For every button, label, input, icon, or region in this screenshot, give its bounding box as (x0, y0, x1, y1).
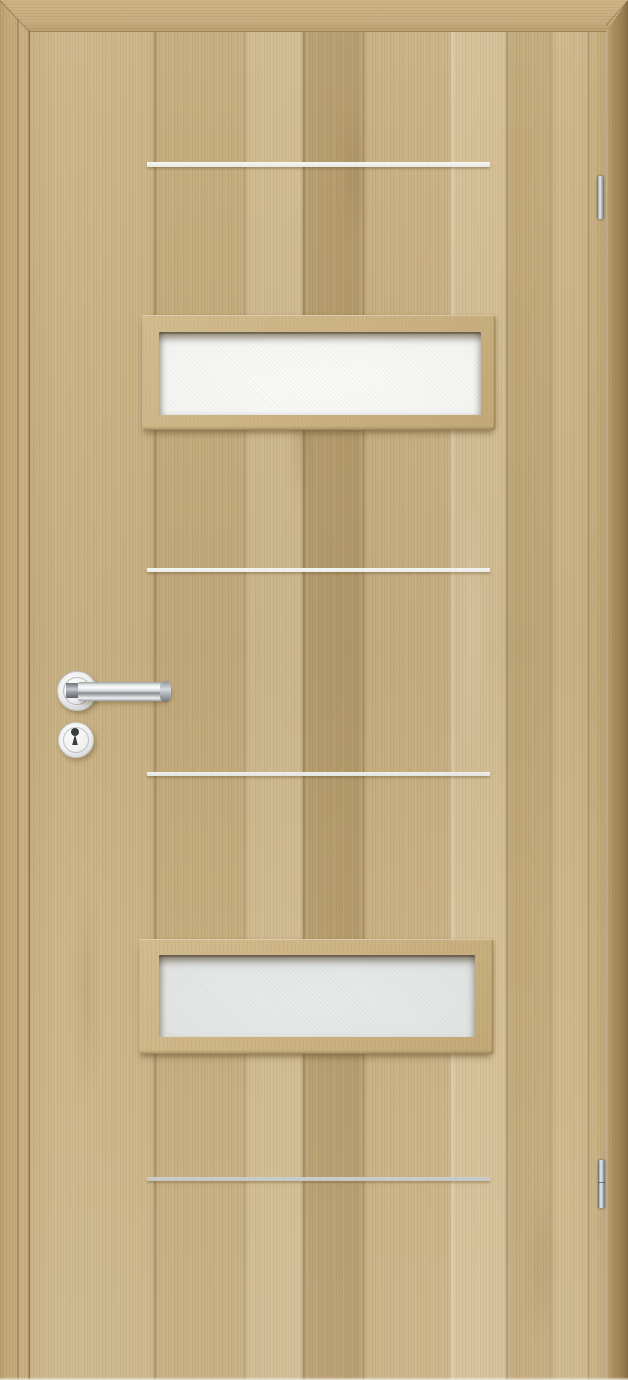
inlay-strip-2 (147, 568, 490, 572)
door-edge-left (0, 0, 30, 1380)
lower-glass-pane (159, 955, 475, 1037)
hinge-bottom (598, 1160, 605, 1208)
hinge-top (597, 176, 604, 219)
inlay-strip-3 (147, 772, 490, 776)
door-handle (78, 682, 170, 701)
inlay-strip-4 (147, 1177, 490, 1181)
door-edge-top (0, 0, 628, 32)
keyhole-wedge (70, 734, 80, 745)
upper-glass-pane (159, 332, 481, 415)
door-photo (0, 0, 628, 1380)
lower-glass-frame (139, 939, 493, 1054)
upper-glass-frame (142, 315, 495, 430)
inlay-strip-1 (147, 162, 490, 167)
keyhole-icon (70, 728, 80, 746)
door-edge-right (606, 0, 628, 1380)
